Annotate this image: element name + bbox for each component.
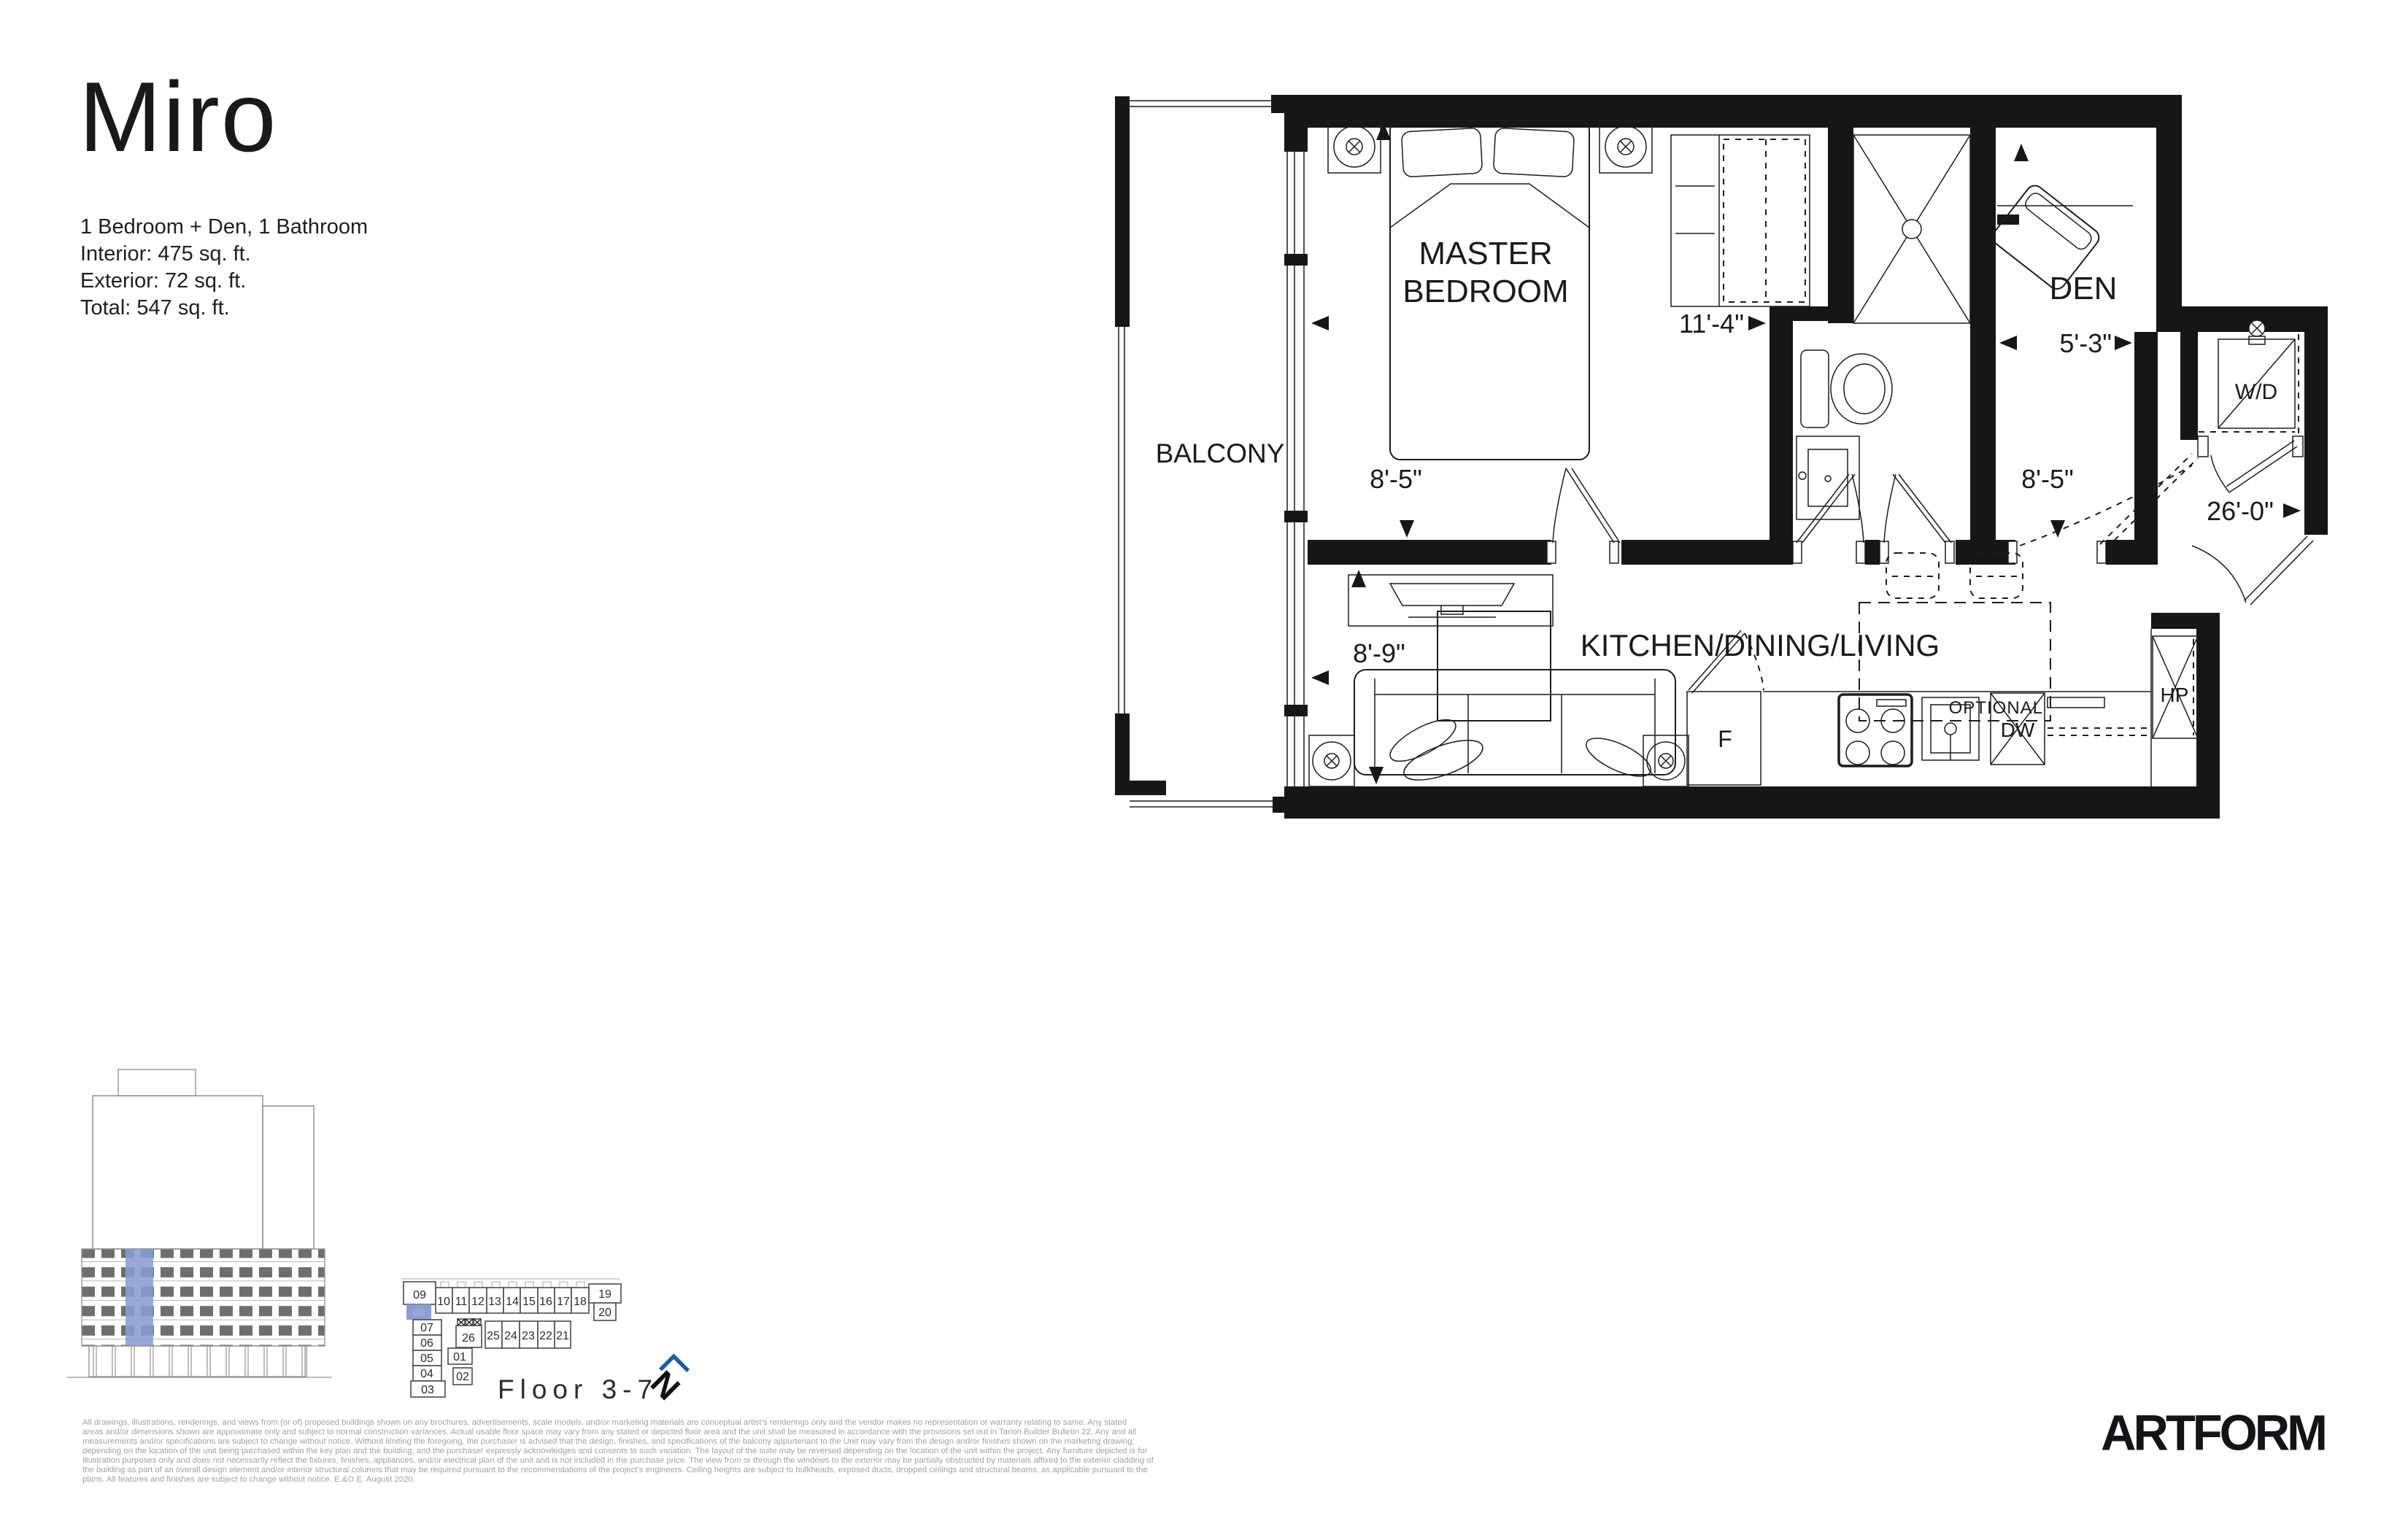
dim-arrow-icon [1311,316,1329,330]
kitchen-label: KITCHEN/DINING/LIVING [1581,628,1940,662]
keyplan-unit: 16 [539,1296,552,1308]
lamp-icon [1659,754,1673,768]
living-width-dim: 8'-9" [1353,638,1405,668]
lowered-counter [2048,697,2150,735]
elevator-icon [458,1319,481,1326]
dim-arrow-icon [2050,520,2065,538]
laundry-closet: W/D [2199,320,2299,434]
faucet-icon [2249,320,2265,344]
keyplan-unit: 26 [462,1332,475,1345]
end-table [1309,735,1354,786]
keyplan-unit-highlighted-label: 08 [413,1307,425,1319]
keyplan: 09 10 11 12 13 14 15 16 17 18 19 20 08 0… [401,1279,658,1404]
balcony: BALCONY [1115,95,1286,813]
keyplan-unit: 25 [487,1330,500,1342]
dim-arrow-icon [1311,670,1329,685]
washer-dryer-label: W/D [2235,380,2277,404]
lamp-icon [1324,754,1339,768]
keyplan-unit: 18 [574,1296,587,1308]
floorplan-page: { "unit": { "name": "Miro", "type_line":… [0,0,2408,1532]
stove [1839,695,1912,766]
keyplan-unit: 06 [420,1337,433,1350]
coffee-table [1438,611,1551,721]
keyplan-unit: 14 [506,1296,519,1308]
dim-arrow-icon [1351,570,1366,587]
dim-arrow-icon [1999,336,2017,350]
building-elevation [67,1069,332,1377]
keyplan-unit: 22 [539,1330,552,1342]
master-bedroom: MASTER BEDROOM [1328,120,1810,460]
keyplan-unit: 04 [420,1368,433,1380]
heat-pump-closet: HP [2153,636,2198,738]
toilet [1801,350,1892,428]
master-bedroom-label-1: MASTER [1419,236,1552,271]
dishwasher-label: DW [2001,719,2035,741]
dim-arrow-icon [2115,336,2132,350]
dim-arrow-icon [2014,144,2029,161]
keyplan-unit: 19 [598,1288,611,1301]
keyplan-unit: 23 [522,1330,535,1342]
keyplan-unit: 13 [488,1296,501,1308]
keyplan-unit: 17 [557,1296,570,1308]
shower [1853,135,1970,323]
keyplan-unit: 03 [421,1384,434,1396]
keyplan-unit: 21 [556,1330,569,1342]
lamp-icon [1346,139,1362,155]
dim-arrow-icon [2283,503,2301,518]
den-label: DEN [2050,271,2118,306]
keyplan-unit: 09 [413,1289,426,1301]
balcony-label: BALCONY [1156,438,1285,468]
den: DEN [1989,182,2133,306]
keyplan-unit: 15 [522,1296,536,1308]
floorplan-drawing: BALCONY [0,0,2408,1532]
vanity-sink [1797,436,1859,519]
master-bedroom-label-2: BEDROOM [1402,274,1568,309]
fridge-label: F [1718,726,1732,752]
end-table [1643,735,1689,786]
keyplan-unit: 05 [420,1353,433,1365]
doors [1547,436,2313,605]
sofa [1354,670,1675,788]
keyplan-unit: 24 [504,1330,517,1342]
master-depth-dim: 8'-5" [1370,464,1422,494]
keyplan-unit: 02 [456,1371,469,1383]
lamp-icon [1618,139,1634,155]
heat-pump-label: HP [2161,684,2189,706]
master-width-dim: 11'-4" [1679,309,1744,338]
dim-arrow-icon [1400,520,1414,538]
floor-range-label: Floor 3-7 [498,1374,658,1404]
dim-arrow-icon [1748,316,1766,330]
keyplan-unit: 11 [455,1296,468,1308]
den-depth-dim: 8'-5" [2021,464,2074,494]
keyplan-unit: 10 [437,1296,450,1308]
optional-label: OPTIONAL [1949,698,2043,718]
keyplan-unit: 07 [420,1322,433,1334]
keyplan-unit: 01 [453,1351,466,1363]
bedroom-closet [1671,135,1810,306]
bathroom [1797,135,1970,519]
keyplan-unit: 20 [598,1307,611,1319]
den-width-dim: 5'-3" [2059,328,2112,358]
tv-console [1348,575,1553,626]
kitchen-dining-living: KITCHEN/DINING/LIVING OPTIONAL F [1309,553,2198,788]
highlighted-stack [126,1249,153,1346]
overall-depth-dim: 26'-0" [2207,496,2274,526]
keyplan-unit: 12 [471,1296,485,1308]
